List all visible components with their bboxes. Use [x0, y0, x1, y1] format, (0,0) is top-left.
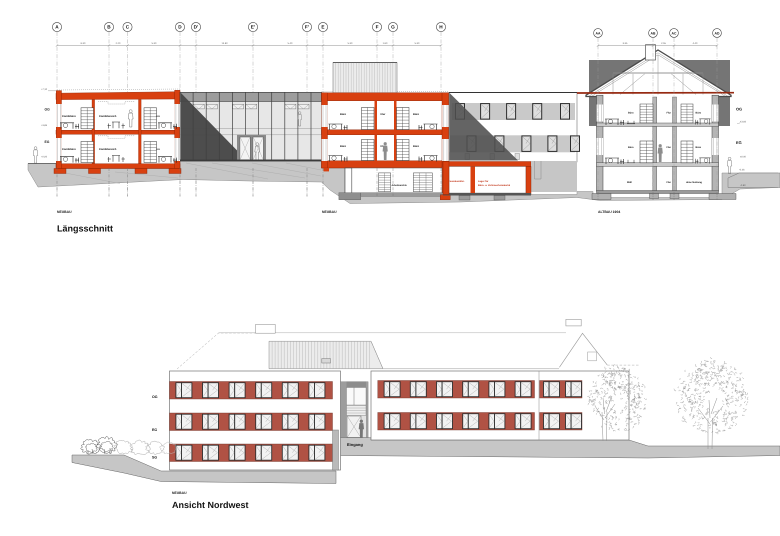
svg-text:Büro: Büro [628, 112, 634, 115]
svg-text:Kombibereich: Kombibereich [99, 115, 116, 118]
svg-text:B: B [107, 25, 110, 30]
svg-text:E: E [321, 25, 324, 30]
svg-text:Flur: Flur [381, 113, 386, 116]
svg-text:Lager für: Lager für [478, 180, 488, 183]
svg-text:5.30: 5.30 [348, 42, 353, 45]
svg-text:14.60: 14.60 [221, 42, 227, 45]
svg-text:SG: SG [152, 456, 157, 460]
svg-text:Eingang: Eingang [347, 443, 363, 447]
svg-text:Flur: Flur [667, 146, 672, 149]
svg-text:NEUBAU: NEUBAU [322, 210, 337, 214]
svg-text:-2.89: -2.89 [740, 184, 746, 187]
svg-text:EG: EG [152, 428, 157, 432]
svg-text:-0.46: -0.46 [739, 169, 745, 172]
svg-text:+0,00: +0,00 [41, 156, 47, 159]
svg-text:ALTBAU 1904: ALTBAU 1904 [598, 210, 620, 214]
svg-text:EG: EG [45, 140, 50, 144]
svg-text:+3,85: +3,85 [41, 124, 47, 127]
svg-text:OG: OG [45, 108, 50, 112]
svg-text:NEUBAU: NEUBAU [172, 491, 187, 495]
svg-text:AC: AC [672, 32, 677, 36]
svg-text:OG: OG [152, 395, 158, 399]
svg-text:Büro: Büro [696, 146, 702, 149]
svg-text:+7,10: +7,10 [41, 88, 47, 91]
svg-text:Büro- u. Verbrauchsmaterial: Büro- u. Verbrauchsmaterial [478, 184, 510, 187]
svg-text:Flur: Flur [667, 112, 672, 115]
svg-text:NEUBAU: NEUBAU [57, 210, 72, 214]
svg-text:5.40: 5.40 [288, 42, 293, 45]
svg-text:AD: AD [715, 32, 720, 36]
svg-text:G: G [391, 25, 395, 30]
svg-text:F’: F’ [305, 25, 309, 30]
svg-text:Büro: Büro [413, 145, 419, 148]
svg-text:Kombibereich: Kombibereich [99, 148, 116, 151]
svg-text:Müll: Müll [627, 181, 632, 184]
svg-text:H: H [439, 25, 442, 30]
svg-text:±0.00: ±0.00 [740, 156, 746, 159]
svg-text:Flur: Flur [667, 181, 672, 184]
svg-text:Büro: Büro [340, 113, 346, 116]
svg-text:C: C [126, 25, 129, 30]
svg-text:Büro: Büro [696, 112, 702, 115]
svg-text:D: D [178, 25, 181, 30]
svg-text:A: A [55, 25, 58, 30]
svg-text:5.30: 5.30 [152, 42, 157, 45]
svg-text:AB: AB [651, 32, 656, 36]
svg-text:Längsschnitt: Längsschnitt [57, 224, 114, 234]
svg-text:Büro: Büro [340, 145, 346, 148]
svg-text:Büro: Büro [628, 146, 634, 149]
svg-text:E’: E’ [251, 25, 256, 30]
svg-text:6.30: 6.30 [81, 42, 86, 45]
svg-text:F: F [376, 25, 379, 30]
svg-text:Kombibüro: Kombibüro [62, 148, 76, 151]
svg-text:ohne Nutzung: ohne Nutzung [686, 181, 702, 184]
svg-text:2.55: 2.55 [661, 42, 666, 45]
svg-text:3.35: 3.35 [623, 42, 628, 45]
svg-text:D’: D’ [194, 25, 199, 30]
svg-text:AA: AA [596, 32, 601, 36]
svg-text:OG: OG [736, 107, 742, 111]
svg-text:EG: EG [736, 141, 742, 145]
svg-text:5.30: 5.30 [415, 42, 420, 45]
svg-text:Büro: Büro [413, 113, 419, 116]
svg-text:2.20: 2.20 [116, 42, 121, 45]
svg-text:4.40: 4.40 [693, 42, 698, 45]
svg-text:1.60: 1.60 [383, 42, 388, 45]
svg-text:Kombibüro: Kombibüro [62, 115, 76, 118]
svg-text:Arbeitsarchiv: Arbeitsarchiv [392, 184, 407, 187]
svg-text:Ansicht Nordwest: Ansicht Nordwest [172, 501, 249, 511]
